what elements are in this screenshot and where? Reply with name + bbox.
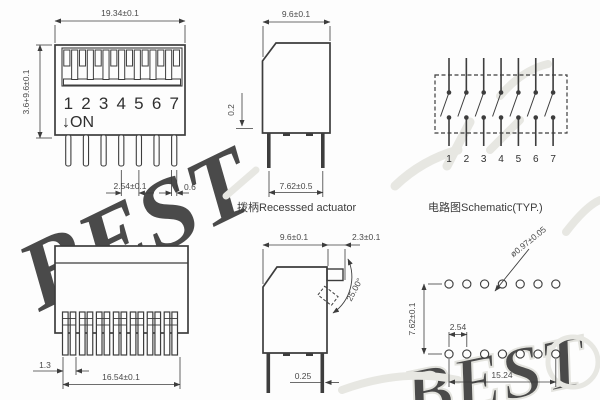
front-switch-number: 6	[152, 94, 161, 113]
schematic-pin-number: 3	[481, 154, 487, 165]
actuator-slot	[126, 50, 132, 66]
side-width-dim: 9.6±0.1	[282, 9, 311, 19]
schematic-pin-number: 6	[533, 154, 539, 165]
bottom-view: 1.3 16.54±0.1	[33, 246, 188, 389]
schematic-lever	[510, 93, 519, 117]
actuator-slot	[64, 50, 70, 66]
actuator-width-dim: 9.6±0.1	[280, 232, 309, 242]
schematic-pin-number: 5	[516, 154, 522, 165]
pcb-hole	[445, 280, 453, 288]
pcb-hole	[516, 280, 524, 288]
schematic-pin-number: 2	[464, 154, 470, 165]
dip-switch-drawing: BEST BEST	[0, 0, 600, 400]
actuator-slot	[79, 50, 85, 66]
front-switch-number: 1	[64, 94, 73, 113]
actuator-slot	[142, 50, 148, 66]
bottom-width-dim: 16.54±0.1	[102, 372, 140, 382]
front-switch-number: 2	[81, 94, 90, 113]
front-switch-number: 3	[99, 94, 108, 113]
front-on-label: ↓ON	[62, 114, 94, 131]
front-pin	[83, 135, 88, 166]
actuator-slot	[95, 50, 101, 66]
schematic-pin-number: 7	[550, 154, 556, 165]
front-height-dim: 3.6+9.6±0.1	[21, 69, 31, 114]
side-view-caption: 拨柄Recesssed actuator	[237, 200, 357, 214]
actuator-slot	[158, 50, 164, 66]
pcb-hole	[498, 350, 506, 358]
schematic-lever	[527, 93, 536, 117]
schematic-numbers: 1234567	[446, 154, 556, 165]
actuator-slot	[87, 50, 93, 80]
pcb-row-width-dim: 15.24	[491, 370, 513, 380]
pcb-row-spacing-dim: 7.62±0.1	[407, 302, 417, 335]
bottom-tooth-dim: 1.3	[39, 360, 51, 370]
schematic-caption: 电路图Schematic(TYP.)	[428, 201, 543, 214]
pcb-hole-diameter-dim: ø0.97±0.05	[508, 224, 548, 259]
actuator-lever	[327, 269, 343, 281]
schematic-lever	[441, 93, 450, 117]
pcb-hole	[516, 350, 524, 358]
side-pin-span-dim: 7.62±0.5	[279, 181, 312, 191]
front-pin	[172, 135, 177, 166]
front-pin	[154, 135, 159, 166]
actuator-pin-thickness-dim: 0.25	[295, 371, 312, 381]
front-switch-number: 4	[117, 94, 126, 113]
pcb-hole-pitch-dim: 2.54	[450, 322, 467, 332]
schematic-lever	[475, 93, 484, 117]
pcb-hole	[445, 350, 453, 358]
actuator-slot	[119, 50, 125, 80]
actuator-slot	[173, 50, 179, 66]
front-pin	[136, 135, 141, 166]
actuator-angle-dim: 25.00°	[344, 276, 364, 302]
schematic-contact-dot	[464, 90, 469, 95]
side-body-outline	[263, 43, 331, 133]
front-pin	[66, 135, 71, 166]
pcb-hole	[534, 350, 542, 358]
front-pin-width-dim: 0.6	[184, 182, 196, 192]
schematic-pin-number: 1	[446, 154, 452, 165]
actuator-slot	[72, 50, 78, 80]
pcb-hole	[481, 280, 489, 288]
actuator-slot	[103, 50, 109, 80]
drawing-canvas: BEST BEST	[0, 0, 600, 400]
actuator-slot	[111, 50, 117, 66]
side-pins	[267, 133, 325, 168]
actuator-side-view: 9.6±0.1 2.3±0.1 25.00° 0.25	[263, 232, 381, 393]
front-width-dim: 19.34±0.1	[101, 8, 139, 18]
pcb-hole	[463, 280, 471, 288]
actuator-slot	[134, 50, 140, 80]
front-switch-number: 5	[134, 94, 143, 113]
pcb-hole	[552, 350, 560, 358]
actuator-slot	[166, 50, 172, 80]
pcb-hole	[481, 350, 489, 358]
pcb-hole	[498, 280, 506, 288]
actuator-slot	[150, 50, 156, 80]
actuator-lever-dim: 2.3±0.1	[352, 232, 381, 242]
actuator-body-outline	[263, 267, 327, 353]
front-pin	[119, 135, 124, 166]
front-pin	[101, 135, 106, 166]
schematic-lever	[458, 93, 467, 117]
front-pitch-dim: 2.54±0.1	[113, 181, 146, 191]
pcb-hole	[463, 350, 471, 358]
front-switch-number: 7	[169, 94, 178, 113]
side-standoff-dim: 0.2	[226, 104, 236, 116]
schematic-view: 1234567 电路图Schematic(TYP.)	[428, 58, 567, 214]
pcb-hole	[534, 280, 542, 288]
schematic-pin-number: 4	[498, 154, 504, 165]
schematic-lever	[545, 93, 554, 117]
pcb-hole	[552, 280, 560, 288]
